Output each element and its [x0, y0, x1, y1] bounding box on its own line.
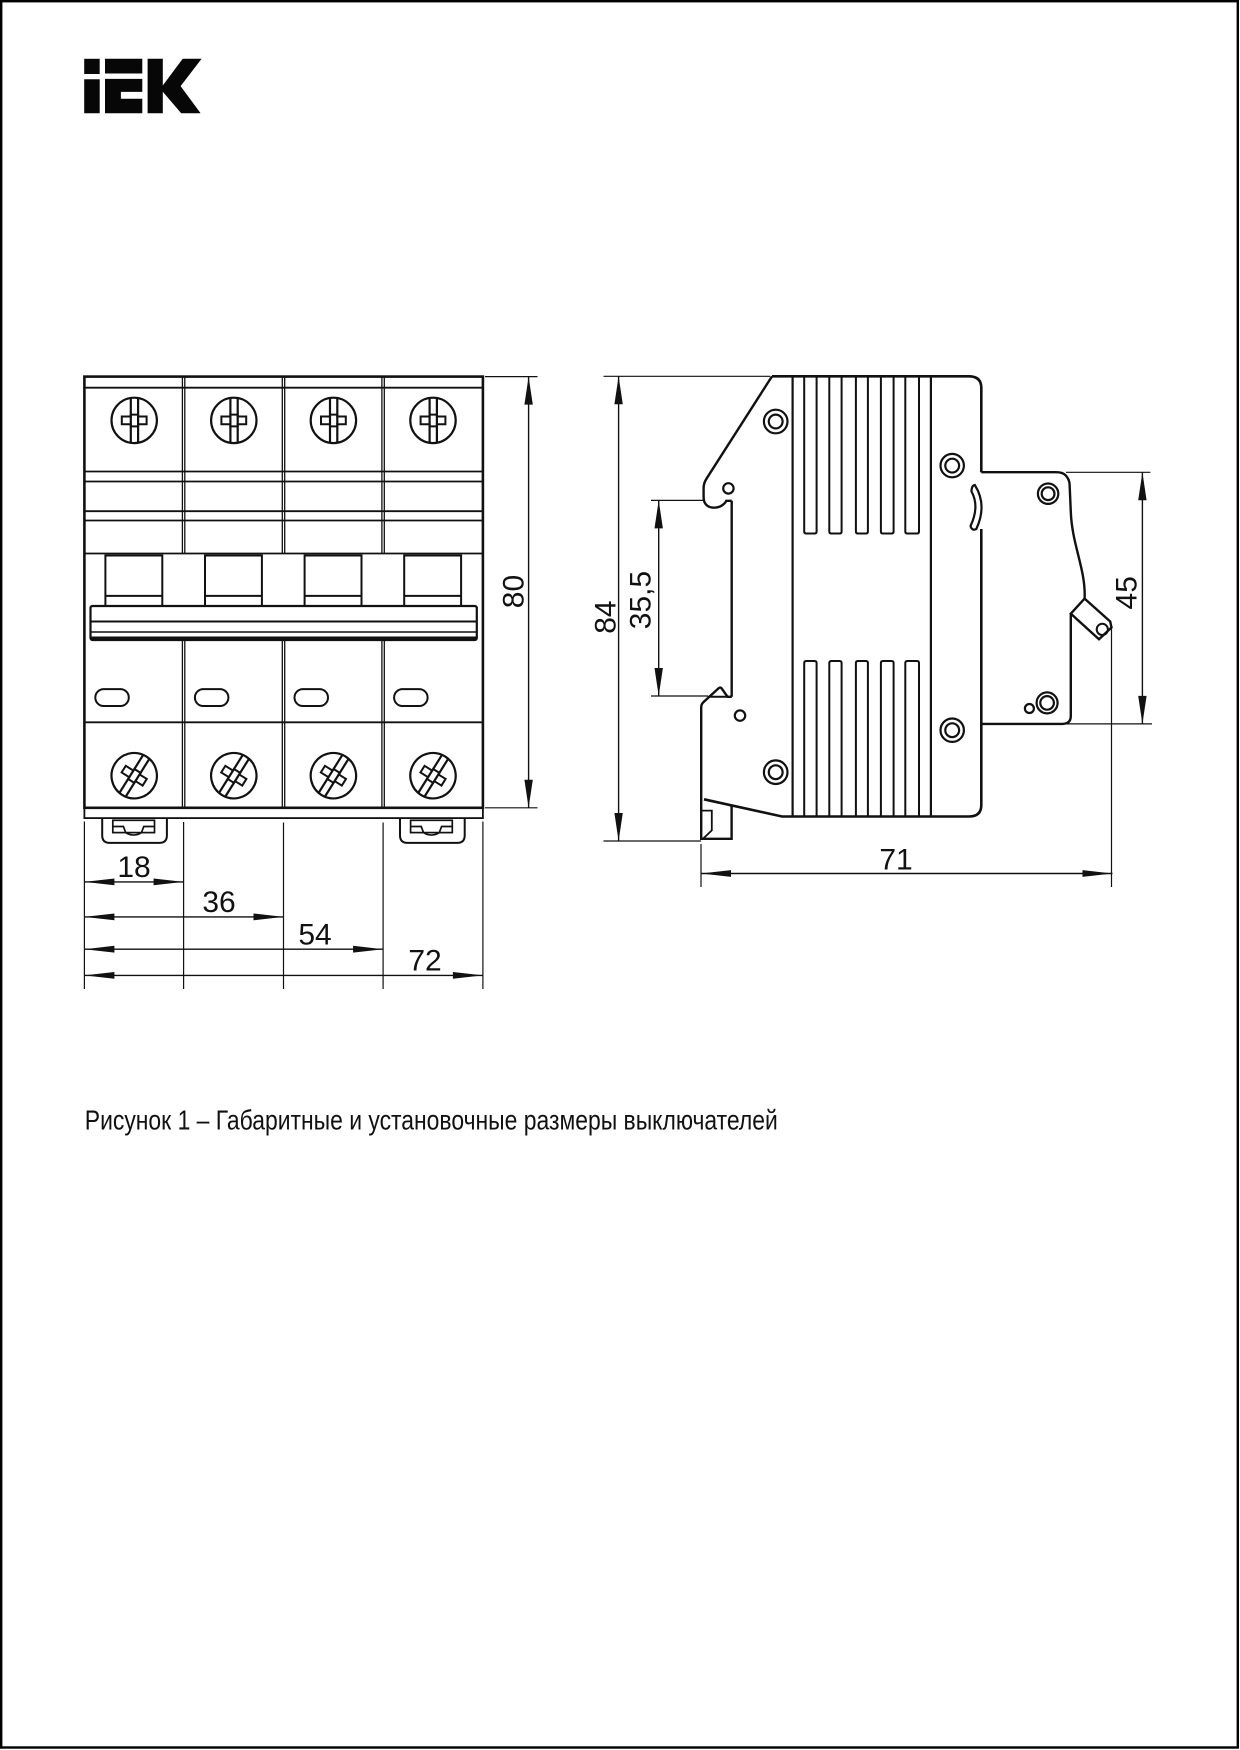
svg-text:36: 36 — [202, 886, 235, 919]
svg-text:54: 54 — [298, 919, 331, 952]
svg-text:45: 45 — [1111, 576, 1144, 609]
svg-text:71: 71 — [879, 844, 912, 877]
svg-text:35,5: 35,5 — [624, 571, 657, 629]
svg-text:84: 84 — [590, 600, 623, 633]
svg-text:80: 80 — [498, 575, 531, 608]
svg-text:Рисунок 1 – Габаритные и устан: Рисунок 1 – Габаритные и установочные ра… — [85, 1105, 778, 1136]
svg-text:72: 72 — [408, 945, 441, 978]
svg-text:18: 18 — [117, 851, 150, 884]
